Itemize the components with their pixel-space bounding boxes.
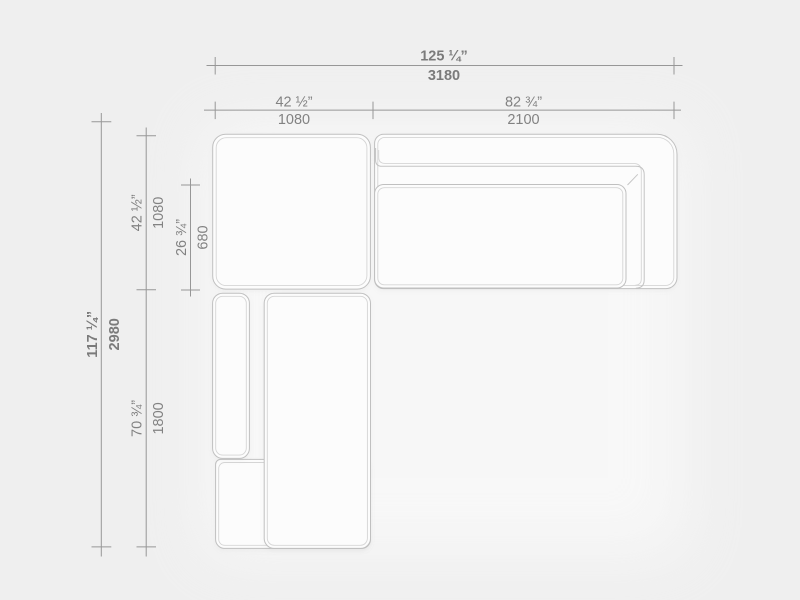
svg-text:70 ¾”: 70 ¾”: [130, 400, 146, 437]
svg-text:1080: 1080: [278, 112, 310, 128]
svg-text:117 ¼”: 117 ¼”: [85, 311, 101, 358]
svg-text:2980: 2980: [107, 318, 123, 350]
svg-text:125 ¼”: 125 ¼”: [420, 49, 468, 65]
svg-text:82 ¾”: 82 ¾”: [505, 95, 542, 111]
svg-text:2100: 2100: [507, 112, 539, 128]
svg-text:1800: 1800: [151, 402, 167, 434]
svg-text:680: 680: [196, 225, 212, 249]
svg-text:3180: 3180: [428, 68, 460, 84]
svg-text:42 ½”: 42 ½”: [275, 95, 312, 111]
svg-text:42 ½”: 42 ½”: [130, 194, 146, 231]
svg-text:26 ¾”: 26 ¾”: [174, 219, 190, 256]
svg-text:1080: 1080: [151, 197, 167, 229]
